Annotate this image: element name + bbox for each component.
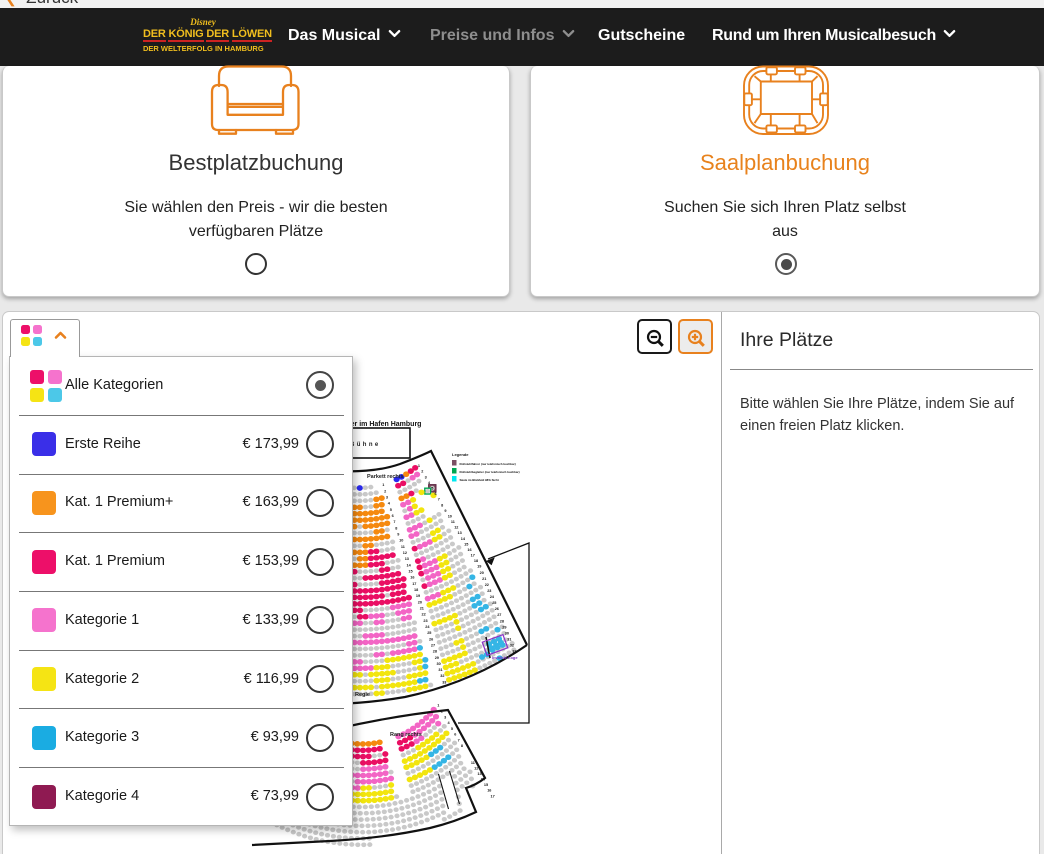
svg-text:12: 12 bbox=[474, 766, 478, 770]
svg-text:3: 3 bbox=[386, 496, 388, 500]
svg-text:24: 24 bbox=[490, 595, 495, 599]
svg-text:14: 14 bbox=[461, 537, 466, 541]
svg-text:2: 2 bbox=[384, 489, 386, 493]
svg-text:25: 25 bbox=[492, 601, 496, 605]
svg-text:Regie: Regie bbox=[355, 692, 370, 698]
svg-text:30: 30 bbox=[437, 662, 441, 666]
svg-text:3: 3 bbox=[425, 475, 427, 479]
svg-text:12: 12 bbox=[454, 526, 458, 530]
svg-text:18: 18 bbox=[474, 559, 478, 563]
svg-text:5: 5 bbox=[431, 487, 433, 491]
svg-text:7: 7 bbox=[438, 498, 440, 502]
svg-text:26: 26 bbox=[495, 607, 499, 611]
svg-text:6: 6 bbox=[392, 514, 394, 518]
svg-text:3: 3 bbox=[444, 715, 446, 719]
svg-text:Bühne: Bühne bbox=[350, 442, 381, 448]
svg-text:21: 21 bbox=[420, 607, 424, 611]
svg-text:Invalide Loge: Invalide Loge bbox=[492, 655, 518, 660]
svg-text:Rang rechts: Rang rechts bbox=[390, 732, 422, 738]
svg-text:13: 13 bbox=[477, 772, 481, 776]
svg-text:12: 12 bbox=[403, 551, 407, 555]
svg-text:7: 7 bbox=[458, 738, 460, 742]
svg-text:23: 23 bbox=[487, 589, 491, 593]
svg-text:14: 14 bbox=[407, 563, 412, 567]
svg-text:29: 29 bbox=[502, 625, 506, 629]
svg-text:1: 1 bbox=[382, 483, 384, 487]
svg-text:Säule im Blickfeld 98% Sicht: Säule im Blickfeld 98% Sicht bbox=[460, 478, 499, 482]
svg-text:15: 15 bbox=[464, 542, 468, 546]
svg-text:27: 27 bbox=[431, 643, 435, 647]
svg-text:33: 33 bbox=[512, 649, 516, 653]
svg-text:5: 5 bbox=[390, 508, 392, 512]
svg-text:17: 17 bbox=[491, 794, 495, 798]
svg-text:13: 13 bbox=[405, 557, 409, 561]
svg-text:Rollstuhlbegleiter (nur telefo: Rollstuhlbegleiter (nur telefonisch buch… bbox=[460, 470, 520, 474]
svg-text:20: 20 bbox=[480, 571, 484, 575]
svg-text:16: 16 bbox=[467, 548, 471, 552]
svg-text:15: 15 bbox=[484, 783, 488, 787]
svg-text:7: 7 bbox=[393, 520, 395, 524]
svg-text:20: 20 bbox=[418, 600, 422, 604]
svg-text:19: 19 bbox=[477, 565, 481, 569]
svg-text:11: 11 bbox=[471, 761, 475, 765]
svg-text:21: 21 bbox=[482, 577, 486, 581]
svg-text:2: 2 bbox=[421, 470, 423, 474]
svg-text:16: 16 bbox=[410, 576, 414, 580]
svg-text:32: 32 bbox=[440, 674, 444, 678]
svg-text:8: 8 bbox=[441, 503, 443, 507]
svg-text:15: 15 bbox=[408, 570, 412, 574]
svg-text:31: 31 bbox=[438, 668, 442, 672]
svg-text:11: 11 bbox=[401, 545, 405, 549]
svg-text:18: 18 bbox=[414, 588, 418, 592]
svg-text:6: 6 bbox=[454, 733, 456, 737]
svg-text:13: 13 bbox=[458, 531, 462, 535]
svg-text:22: 22 bbox=[422, 613, 426, 617]
svg-text:11: 11 bbox=[451, 520, 455, 524]
svg-text:28: 28 bbox=[500, 619, 504, 623]
svg-text:27: 27 bbox=[497, 613, 501, 617]
svg-text:28: 28 bbox=[433, 650, 437, 654]
svg-text:24: 24 bbox=[425, 625, 430, 629]
svg-text:8: 8 bbox=[395, 526, 397, 530]
svg-text:26: 26 bbox=[429, 637, 433, 641]
svg-text:8: 8 bbox=[461, 744, 463, 748]
svg-text:2: 2 bbox=[441, 709, 443, 713]
svg-text:10: 10 bbox=[448, 515, 452, 519]
svg-text:19: 19 bbox=[416, 594, 420, 598]
svg-text:30: 30 bbox=[505, 631, 509, 635]
svg-text:33: 33 bbox=[442, 680, 446, 684]
svg-text:10: 10 bbox=[399, 539, 403, 543]
svg-text:5: 5 bbox=[451, 727, 453, 731]
svg-text:1: 1 bbox=[418, 464, 420, 468]
svg-text:9: 9 bbox=[444, 509, 446, 513]
svg-text:32: 32 bbox=[510, 643, 514, 647]
svg-text:25: 25 bbox=[427, 631, 431, 635]
svg-text:29: 29 bbox=[435, 656, 439, 660]
svg-text:4: 4 bbox=[388, 502, 391, 506]
svg-text:9: 9 bbox=[397, 533, 399, 537]
svg-text:4: 4 bbox=[448, 721, 451, 725]
svg-text:31: 31 bbox=[507, 637, 511, 641]
svg-text:Parkett rechts: Parkett rechts bbox=[367, 474, 404, 480]
svg-text:1: 1 bbox=[437, 704, 439, 708]
svg-text:17: 17 bbox=[412, 582, 416, 586]
svg-text:Legende: Legende bbox=[452, 452, 469, 457]
svg-text:6: 6 bbox=[435, 492, 437, 496]
svg-text:17: 17 bbox=[471, 554, 475, 558]
svg-text:23: 23 bbox=[423, 619, 427, 623]
svg-text:22: 22 bbox=[485, 583, 489, 587]
svg-text:16: 16 bbox=[487, 789, 491, 793]
svg-text:Rollstuhlfahrer (nur telefonis: Rollstuhlfahrer (nur telefonisch buchbar… bbox=[460, 462, 516, 466]
